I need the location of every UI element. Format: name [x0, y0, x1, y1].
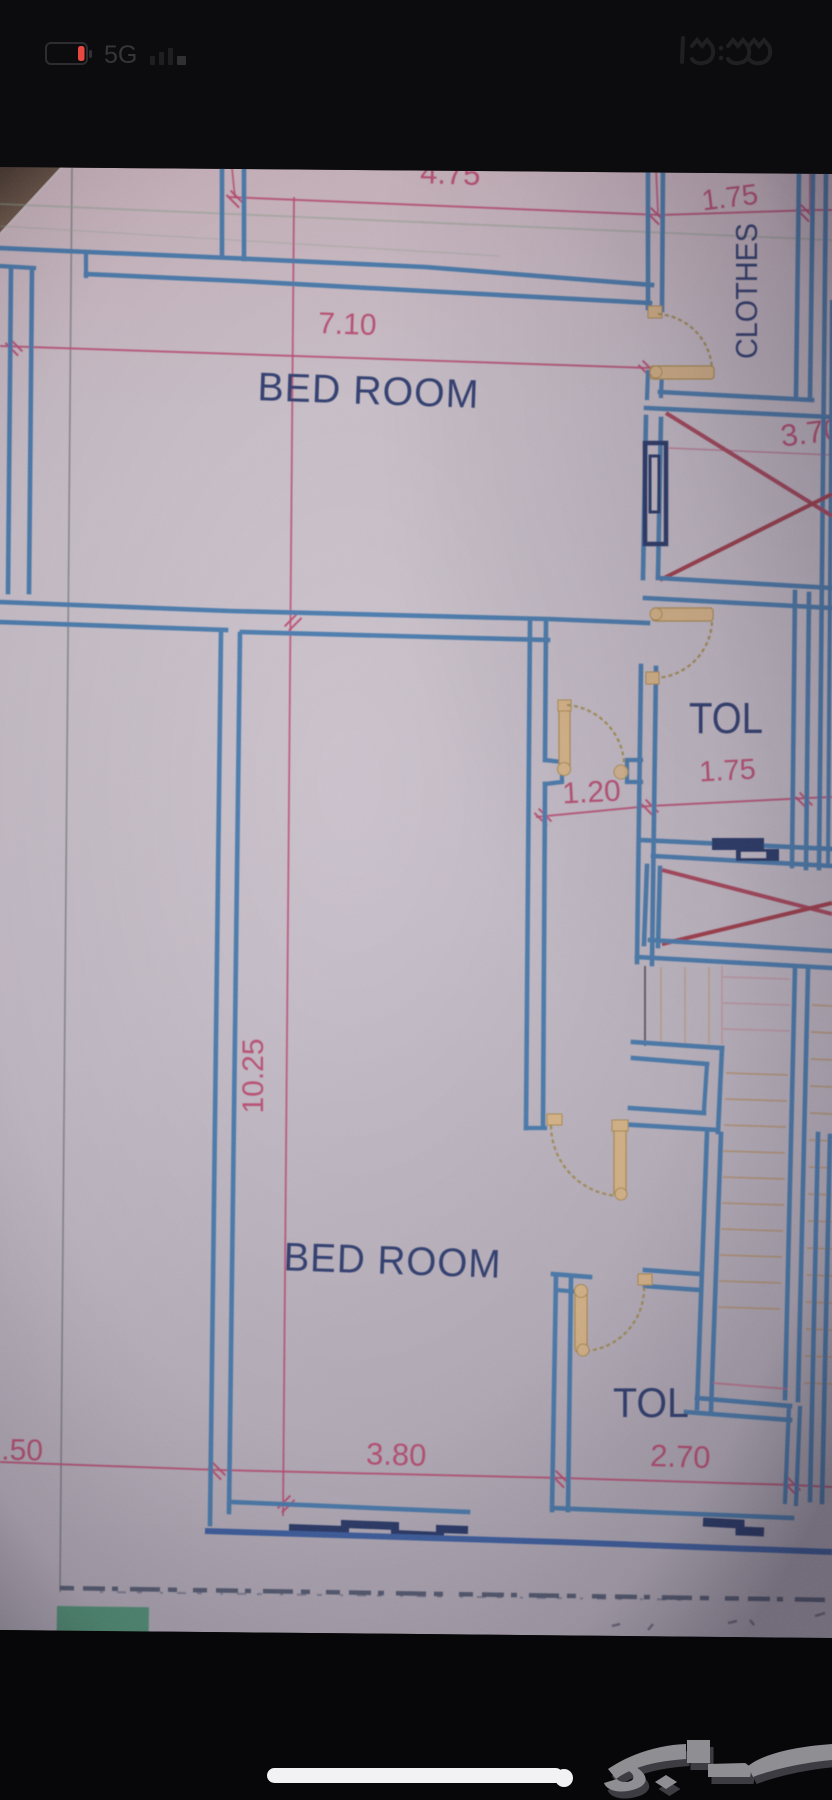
- svg-text:5G: 5G: [104, 41, 137, 69]
